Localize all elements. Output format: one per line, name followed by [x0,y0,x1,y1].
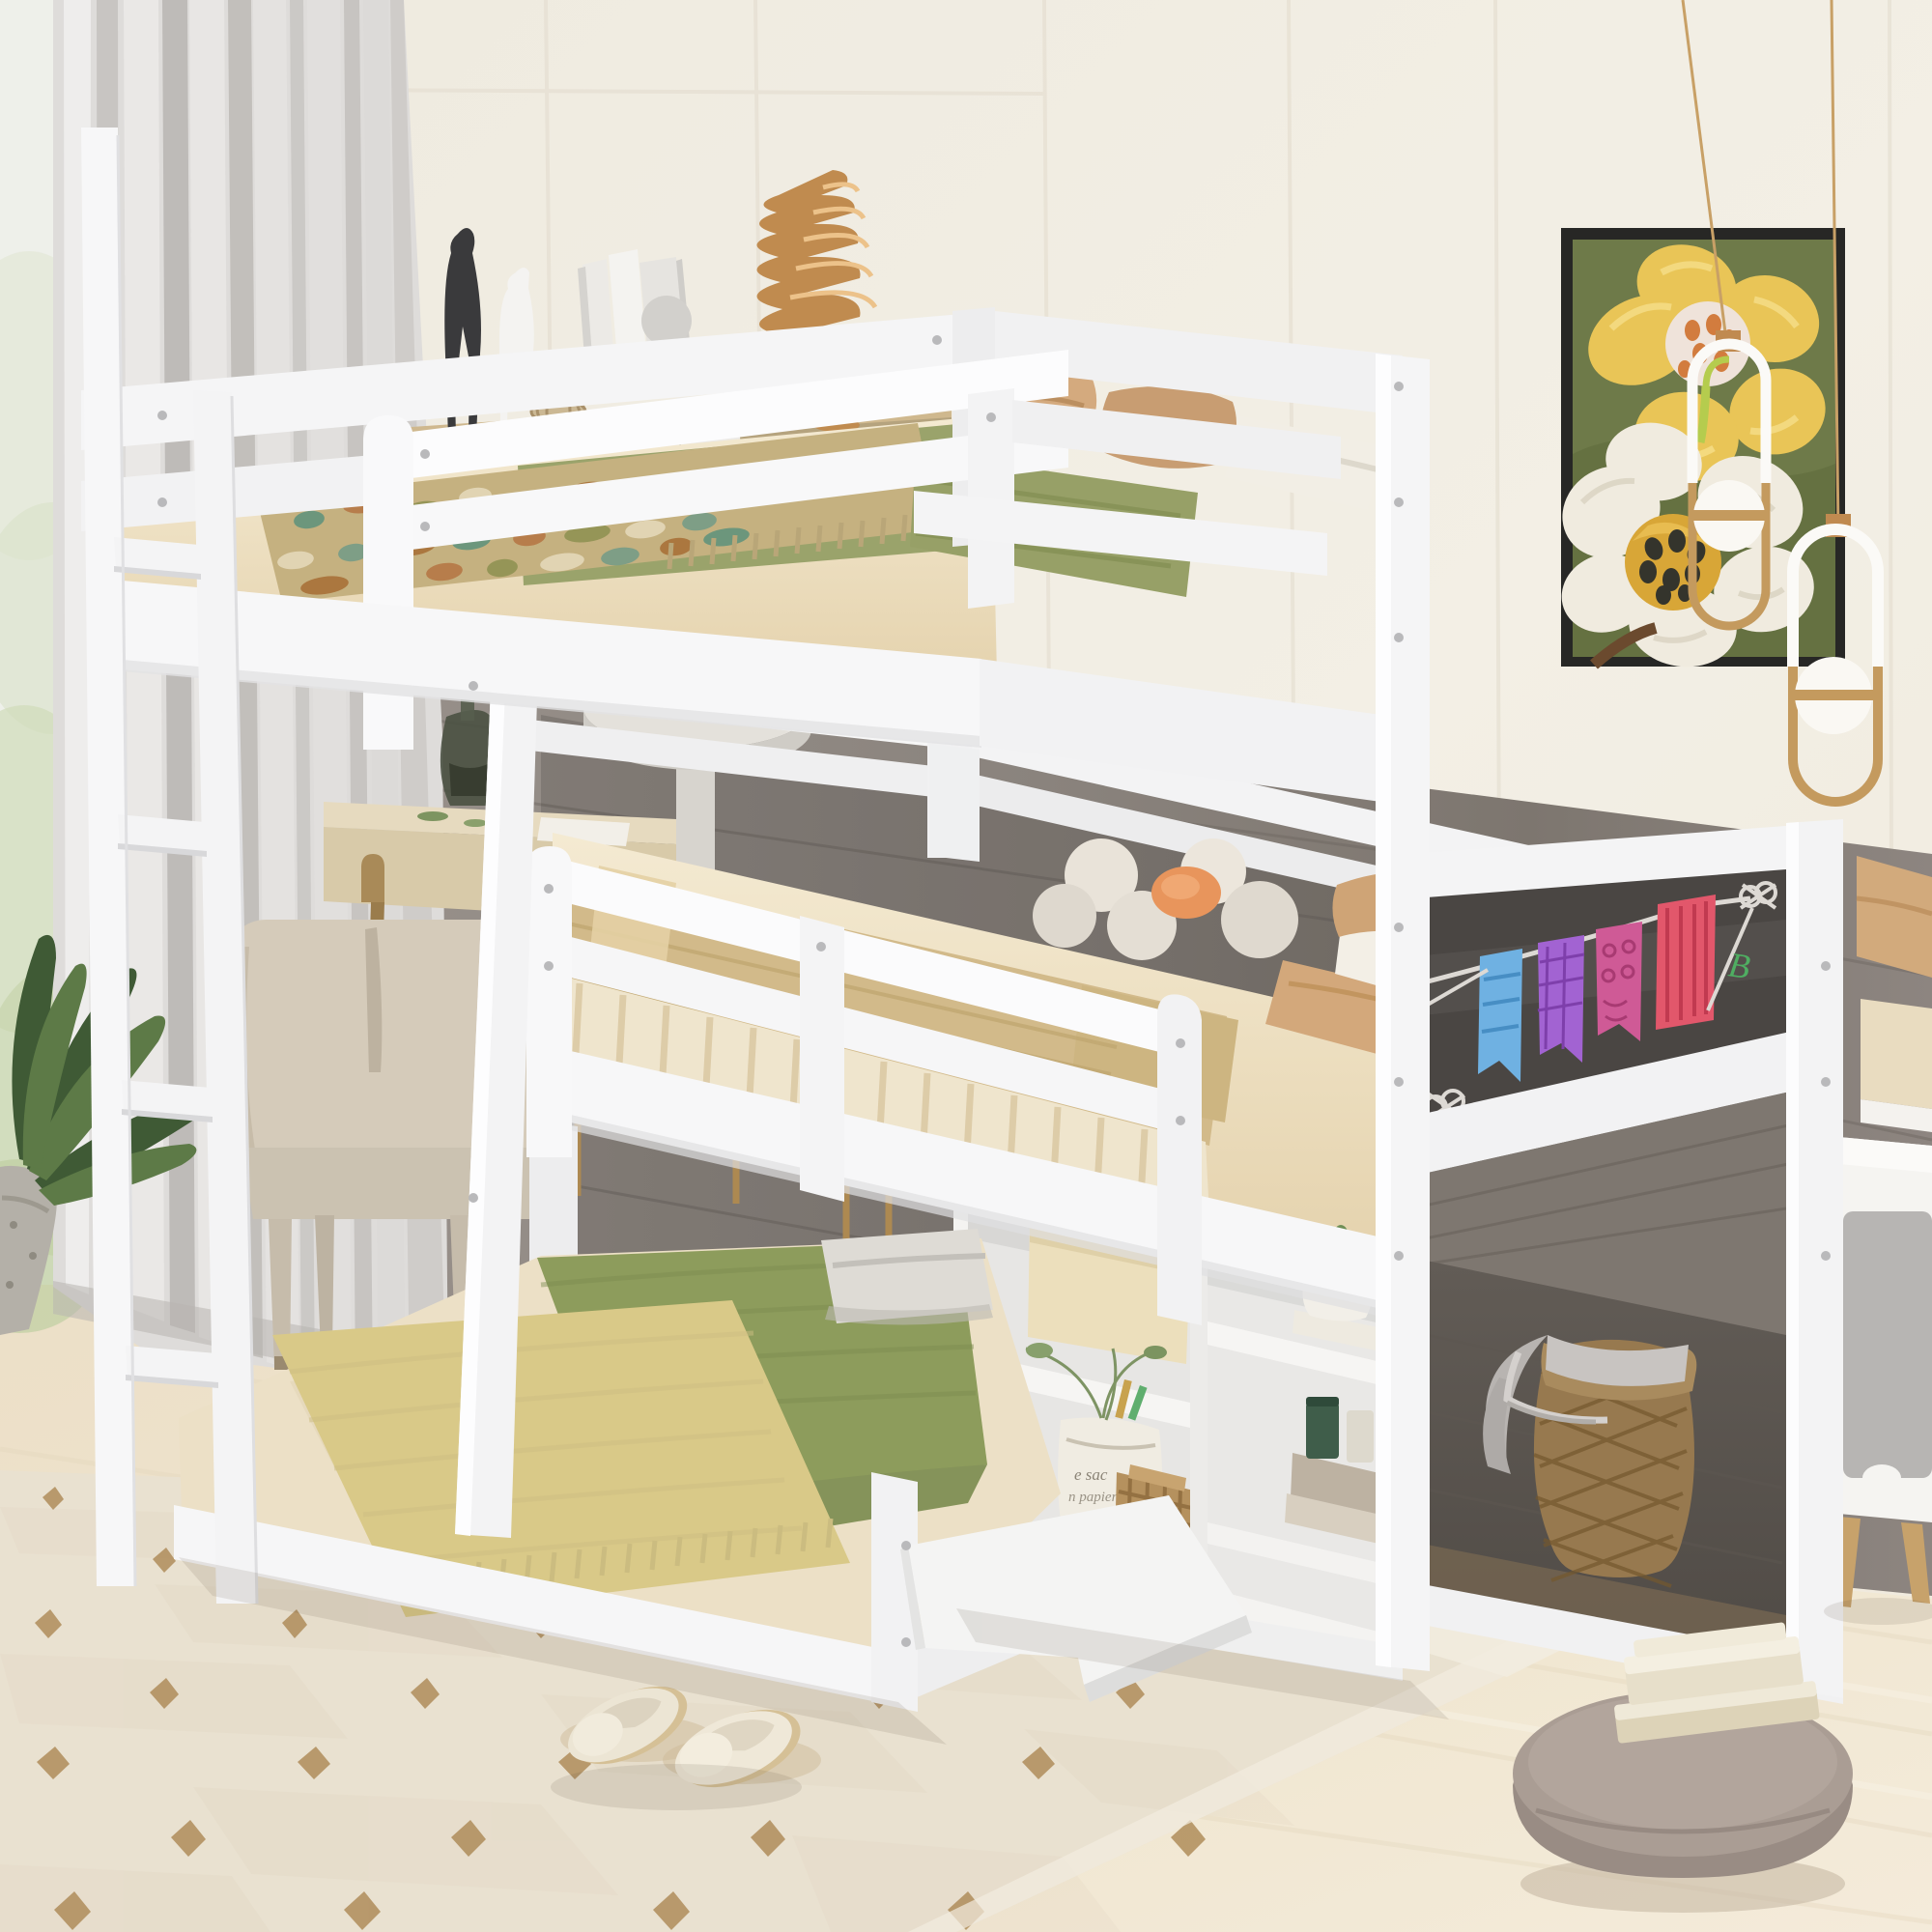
svg-text:n papier: n papier [1068,1490,1118,1505]
svg-text:e sac: e sac [1074,1465,1108,1484]
